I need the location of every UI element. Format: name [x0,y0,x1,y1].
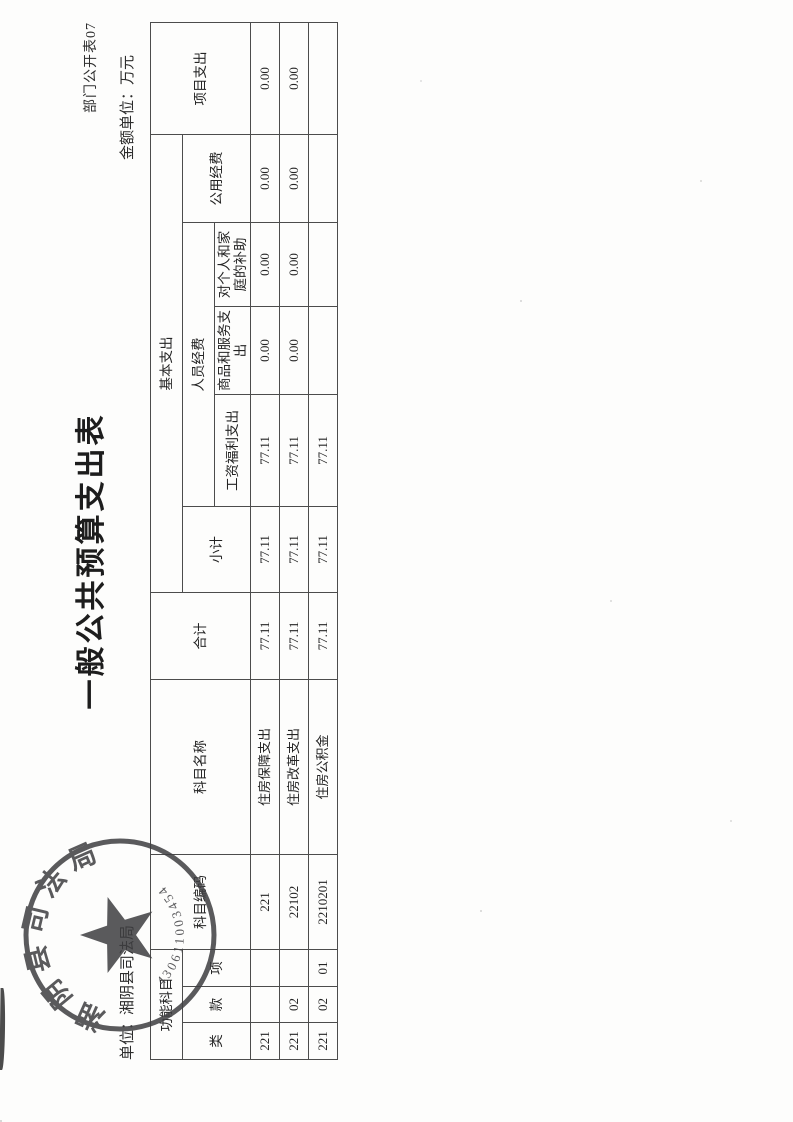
cell-item [251,949,280,986]
stamp-code-text: 430611003454 [153,882,187,988]
cell-subtotal: 77.11 [251,506,280,592]
cell-class: 221 [280,1023,309,1060]
table-row: 221 02 22102 住房改革支出 77.11 77.11 77.11 0.… [280,22,309,1059]
cell-item [280,949,309,986]
header-personnel: 人员经费 [183,222,215,506]
header-wages: 工资福利支出 [215,394,251,506]
cell-section [251,987,280,1023]
cell-family: 0.00 [251,222,280,306]
cell-code: 221 [251,854,280,949]
cell-total: 77.11 [309,592,338,679]
header-project: 项目支出 [151,22,251,134]
cell-project [309,22,338,134]
cell-name: 住房公积金 [309,679,338,854]
table-row: 221 221 住房保障支出 77.11 77.11 77.11 0.00 0.… [251,22,280,1059]
cell-subtotal: 77.11 [309,506,338,592]
cell-public: 0.00 [280,134,309,222]
header-basic: 基本支出 [151,134,183,592]
cell-goods: 0.00 [251,306,280,394]
cell-item: 01 [309,949,338,986]
cell-total: 77.11 [251,592,280,679]
scan-edge-artifact [0,988,6,1070]
cell-wages: 77.11 [309,394,338,506]
header-goods: 商品和服务支出 [215,306,251,394]
header-subtotal: 小计 [183,506,251,592]
cell-subtotal: 77.11 [280,506,309,592]
amount-unit-label: 金额单位：万元 [116,55,137,160]
cell-project: 0.00 [251,22,280,134]
scanned-sheet: 部门公开表07 一般公共预算支出表 单位：湘阴县司法局 金额单位：万元 功能科目… [0,0,793,1122]
cell-section: 02 [309,987,338,1023]
header-public: 公用经费 [183,134,251,222]
cell-section: 02 [280,987,309,1023]
cell-code: 2210201 [309,854,338,949]
official-stamp: 湘阴县司法局 430611003454 [20,835,220,1035]
cell-name: 住房改革支出 [280,679,309,854]
cell-code: 22102 [280,854,309,949]
cell-class: 221 [309,1023,338,1060]
header-name: 科目名称 [151,679,251,854]
cell-wages: 77.11 [251,394,280,506]
header-family: 对个人和家庭的补助 [215,222,251,306]
cell-goods [309,306,338,394]
stamp-star-icon [80,897,152,973]
cell-total: 77.11 [280,592,309,679]
cell-class: 221 [251,1023,280,1060]
cell-project: 0.00 [280,22,309,134]
header-total: 合计 [151,592,251,679]
cell-public [309,134,338,222]
cell-goods: 0.00 [280,306,309,394]
cell-public: 0.00 [251,134,280,222]
cell-wages: 77.11 [280,394,309,506]
cell-family [309,222,338,306]
table-row: 221 02 01 2210201 住房公积金 77.11 77.11 77.1… [309,22,338,1059]
cell-name: 住房保障支出 [251,679,280,854]
cell-family: 0.00 [280,222,309,306]
